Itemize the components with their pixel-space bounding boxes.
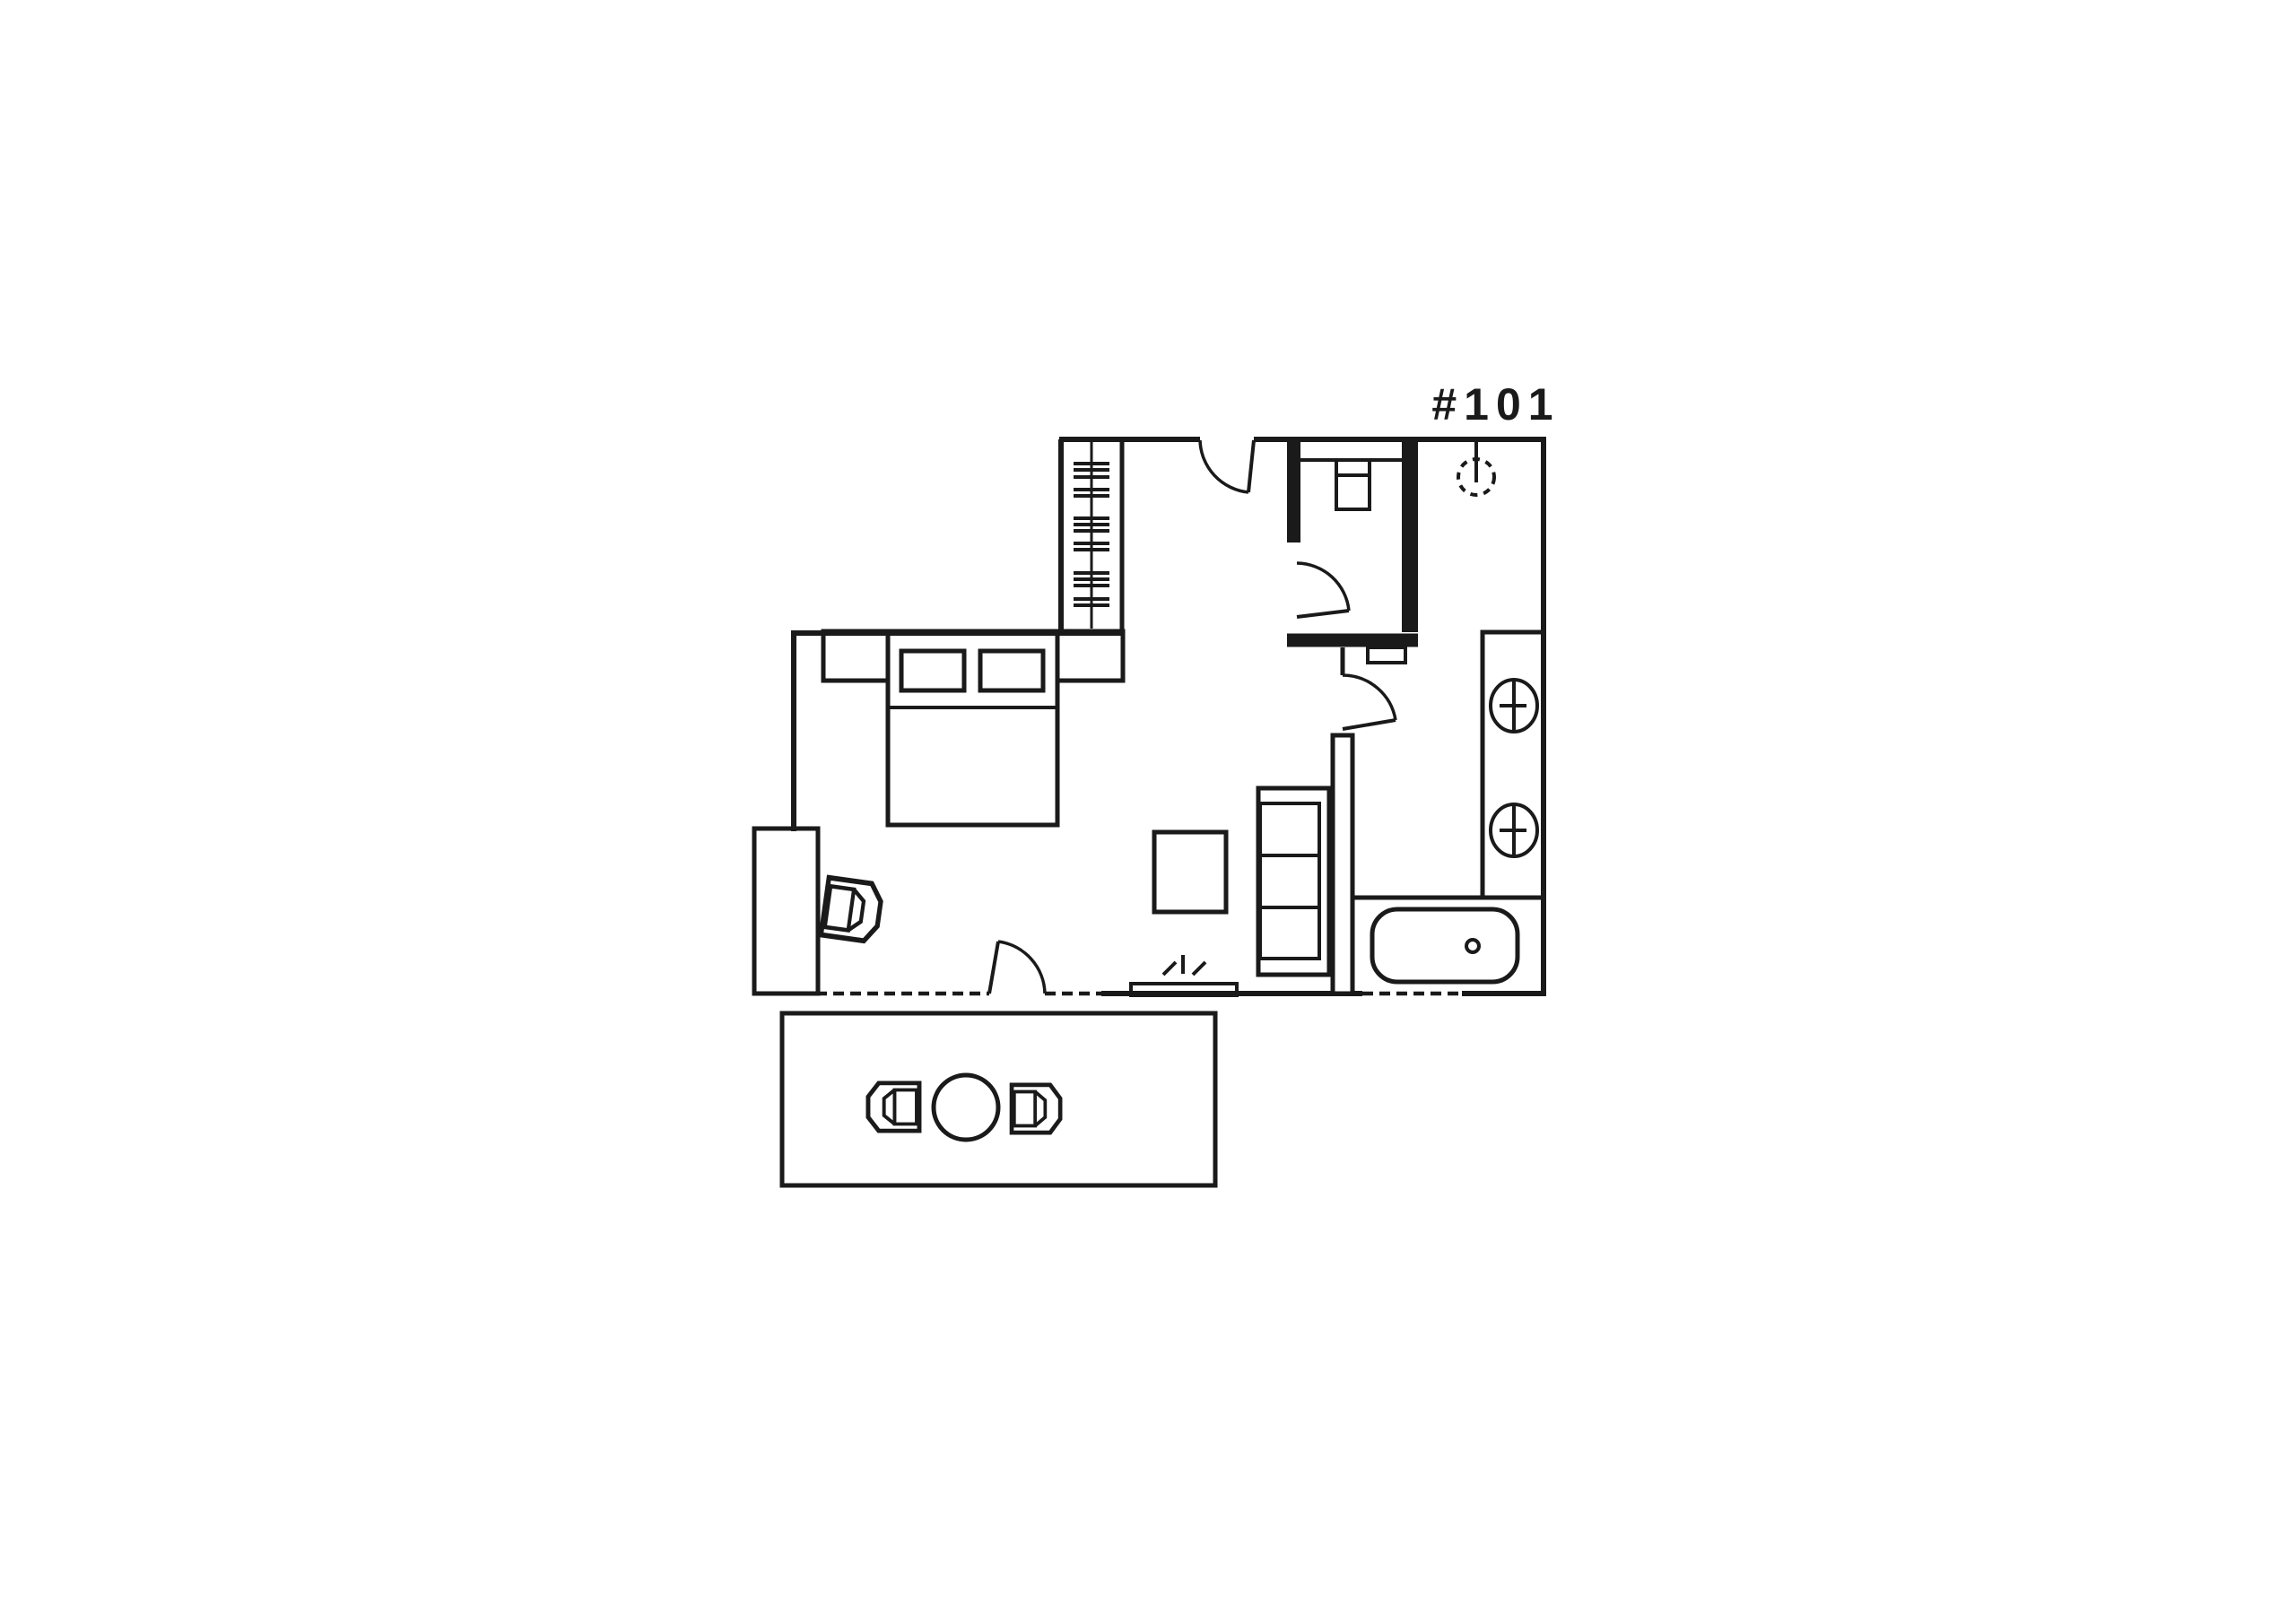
living-area <box>989 788 1329 995</box>
bed-outline <box>888 631 1057 825</box>
wc-room <box>1287 438 1418 663</box>
entry-door-leaf <box>1248 440 1254 492</box>
deck-chair-left <box>868 1083 919 1131</box>
tv <box>1131 955 1237 995</box>
pillow-left <box>901 651 964 690</box>
entry-door-swing-arc <box>1200 440 1248 492</box>
bathroom-partition-wall <box>1333 735 1352 994</box>
nightstand-left <box>823 631 888 681</box>
page-background <box>0 0 2296 1623</box>
tv-signal-ray-left <box>1163 962 1176 975</box>
wc-threshold-shelf <box>1368 647 1405 663</box>
toilet-body <box>1336 460 1370 509</box>
floor-plan-svg: #101 <box>0 0 2296 1623</box>
wc-door <box>1297 563 1349 617</box>
plan <box>754 437 1546 1185</box>
bedroom <box>754 631 1123 994</box>
floor-plan-page: #101 <box>0 0 2296 1623</box>
bathroom <box>1333 441 1544 994</box>
tv-signal-ray-right <box>1193 962 1205 975</box>
sofa <box>1258 788 1329 975</box>
terrace-door <box>989 942 1045 994</box>
sink-lower <box>1491 804 1537 856</box>
deck-chair-right <box>1012 1085 1060 1133</box>
pendant-light <box>1458 441 1494 495</box>
desk <box>754 829 818 994</box>
sofa-cushions <box>1260 803 1319 959</box>
desk-chair <box>821 878 883 942</box>
bathroom-door-swing-arc <box>1343 675 1396 720</box>
tv-screen <box>1131 984 1237 995</box>
deck <box>782 1013 1215 1185</box>
toilet <box>1336 460 1370 509</box>
bathroom-door-leaf <box>1343 720 1396 729</box>
entry-door <box>1200 440 1254 492</box>
bathtub <box>1372 909 1518 982</box>
unit-number-label: #101 <box>1431 379 1560 430</box>
bathtub-rim <box>1372 909 1518 982</box>
double-bed <box>888 631 1057 825</box>
wc-door-swing-arc <box>1297 563 1349 611</box>
terrace-door-leaf <box>989 942 998 994</box>
bathtub-drain <box>1466 940 1479 952</box>
sink-upper <box>1491 680 1537 732</box>
wardrobe <box>1074 439 1122 633</box>
terrace-door-swing-arc <box>998 942 1045 994</box>
pillow-right <box>980 651 1043 690</box>
deck-table <box>934 1075 998 1140</box>
bathroom-door <box>1343 675 1396 729</box>
wc-door-leaf <box>1297 611 1349 617</box>
nightstand-right <box>1057 631 1123 681</box>
coffee-table <box>1154 832 1226 912</box>
